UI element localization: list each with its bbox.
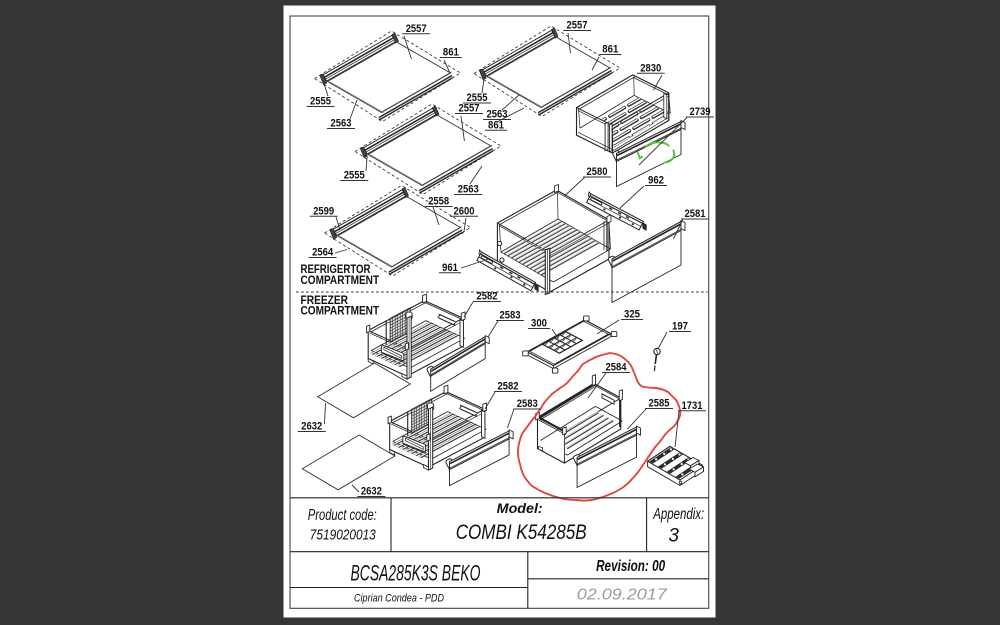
svg-text:2564: 2564 <box>312 247 333 259</box>
svg-text:861: 861 <box>488 119 504 131</box>
svg-text:961: 961 <box>442 262 458 274</box>
svg-text:2600: 2600 <box>454 205 475 217</box>
svg-text:7519020013: 7519020013 <box>310 528 376 544</box>
svg-text:02.09.2017: 02.09.2017 <box>577 587 669 604</box>
svg-text:2581: 2581 <box>685 208 706 220</box>
svg-text:2557: 2557 <box>567 20 588 32</box>
svg-text:2563: 2563 <box>458 184 479 196</box>
svg-text:2830: 2830 <box>640 62 661 74</box>
svg-text:2632: 2632 <box>361 486 382 498</box>
svg-text:197: 197 <box>672 321 688 333</box>
svg-text:962: 962 <box>648 175 664 187</box>
svg-text:2555: 2555 <box>310 96 331 108</box>
svg-text:325: 325 <box>624 309 640 321</box>
svg-text:2580: 2580 <box>587 166 608 178</box>
svg-text:861: 861 <box>602 44 618 56</box>
svg-text:Model:: Model: <box>497 501 543 516</box>
svg-text:BCSA285K3S BEKO: BCSA285K3S BEKO <box>351 561 481 586</box>
svg-text:2585: 2585 <box>649 398 670 410</box>
svg-text:2582: 2582 <box>477 291 498 303</box>
svg-text:2558: 2558 <box>428 196 449 208</box>
svg-text:Revision: 00: Revision: 00 <box>596 558 665 575</box>
svg-text:300: 300 <box>531 318 547 330</box>
svg-text:COMBI K54285B: COMBI K54285B <box>456 521 587 544</box>
svg-text:Appendix:: Appendix: <box>652 506 704 523</box>
svg-text:2583: 2583 <box>500 310 521 322</box>
svg-text:2555: 2555 <box>344 170 365 182</box>
svg-text:Product code:: Product code: <box>308 507 377 524</box>
svg-text:2599: 2599 <box>313 205 334 217</box>
svg-text:1731: 1731 <box>682 400 703 412</box>
svg-text:2582: 2582 <box>498 381 519 393</box>
svg-text:2584: 2584 <box>606 362 627 374</box>
svg-text:2557: 2557 <box>459 103 480 115</box>
svg-text:2557: 2557 <box>406 23 427 35</box>
svg-text:COMPARTMENT: COMPARTMENT <box>301 275 380 287</box>
svg-text:REFRIGERTOR: REFRIGERTOR <box>301 264 372 276</box>
svg-text:2739: 2739 <box>690 106 711 118</box>
svg-text:2563: 2563 <box>331 118 352 130</box>
svg-text:Ciprian Condea - PDD: Ciprian Condea - PDD <box>354 592 444 604</box>
svg-text:3: 3 <box>668 525 679 546</box>
svg-text:COMPARTMENT: COMPARTMENT <box>301 306 380 318</box>
svg-text:2632: 2632 <box>301 421 322 433</box>
svg-text:2583: 2583 <box>517 398 538 410</box>
svg-text:861: 861 <box>443 47 459 59</box>
